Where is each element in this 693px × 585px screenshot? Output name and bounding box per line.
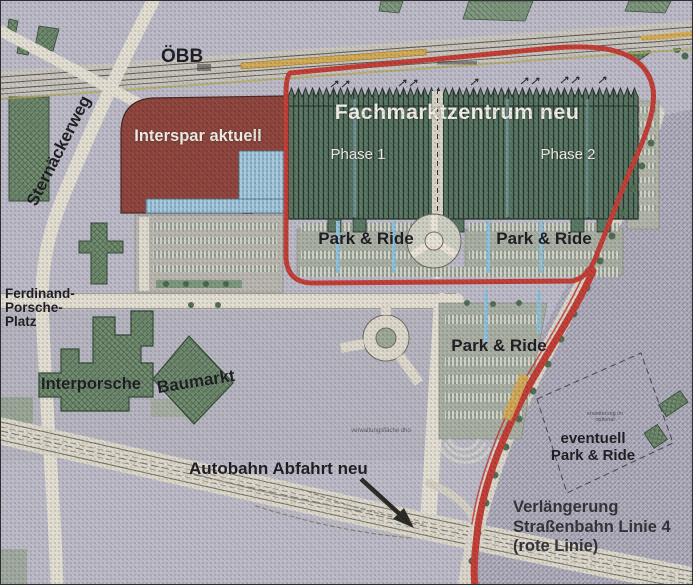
park-ride-south-label: Park & Ride (429, 337, 569, 355)
site-plan-map: ÖBB Sternäckerweg Interspar aktuell Fach… (0, 0, 693, 585)
park-ride-east-label: Park & Ride (474, 230, 614, 248)
phase1-label: Phase 1 (318, 147, 398, 163)
phase2-label: Phase 2 (528, 147, 608, 163)
fachmarktzentrum-label: Fachmarktzentrum neu (307, 101, 607, 124)
eventuell-line1: eventuell (529, 430, 657, 447)
verlaengerung-label: Verlängerung Straßenbahn Linie 4 (rote L… (513, 498, 688, 557)
autobahn-abfahrt-label: Autobahn Abfahrt neu (189, 460, 389, 478)
interspar-building (121, 96, 284, 213)
ferdinand-porsche-platz-label: Ferdinand- Porsche- Platz (5, 287, 115, 329)
fpp-line1: Ferdinand- (5, 287, 115, 301)
note-verwaltungsflaeche: verwaltungsfläche dho (331, 428, 431, 434)
eventuell-line2: Park & Ride (529, 447, 657, 464)
verlaengerung-line3: (rote Linie) (513, 537, 688, 557)
interspar-parking-lot (135, 207, 283, 293)
fpp-line2: Porsche- (5, 301, 115, 315)
note-erweiterung-line2: optional (575, 417, 635, 423)
parking-row-strip (299, 267, 619, 277)
verlaengerung-line1: Verlängerung (513, 498, 688, 518)
oebb-label: ÖBB (161, 47, 231, 67)
park-ride-west-label: Park & Ride (296, 230, 436, 248)
fpp-line3: Platz (5, 315, 115, 329)
note-erweiterung: erweiterung im optional (575, 411, 635, 423)
verlaengerung-line2: Straßenbahn Linie 4 (513, 518, 688, 538)
eventuell-park-ride-label: eventuell Park & Ride (529, 430, 657, 464)
interspar-label: Interspar aktuell (119, 128, 277, 145)
